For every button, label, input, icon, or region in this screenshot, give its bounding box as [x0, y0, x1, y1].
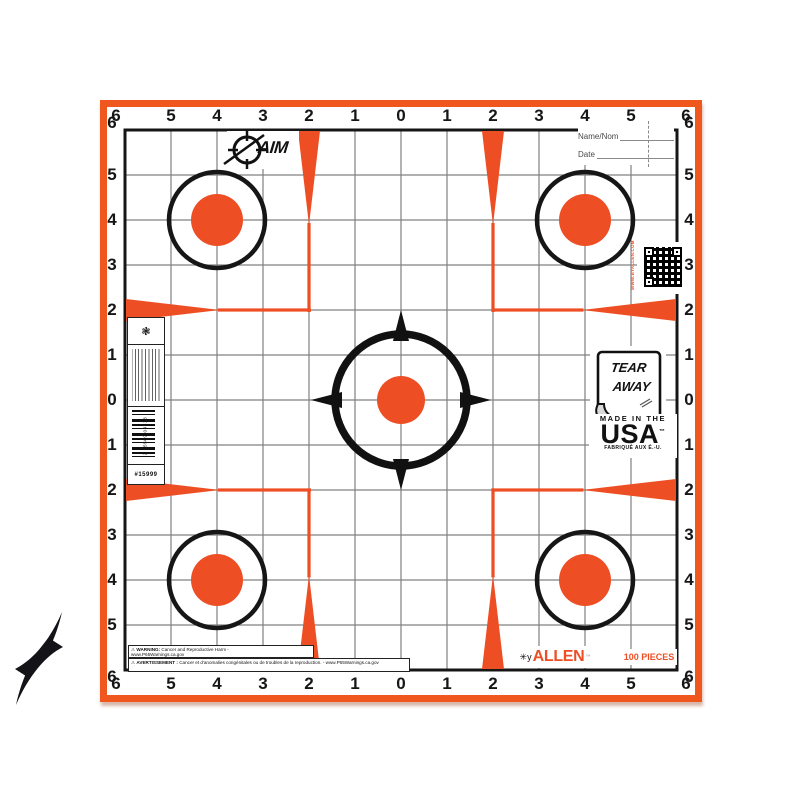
- qr-finder-icon: [644, 247, 654, 257]
- made-in-usa-badge: MADE IN THE USA™ FABRIQUÉ AUX É.-U.: [589, 414, 677, 458]
- allen-flower-icon: ❃: [128, 318, 164, 345]
- name-date-block: Name/Nom Date: [578, 123, 674, 165]
- tear-away-line2: AWAY: [612, 379, 651, 394]
- allen-logo-text: ALLEN: [533, 648, 585, 666]
- qr-finder-icon: [672, 247, 682, 257]
- allen-flower-icon: ✳y: [520, 653, 532, 662]
- qr-code: [637, 242, 685, 294]
- warning-en-box: ⚠ WARNING: Cancer and Reproductive Harm …: [128, 645, 314, 658]
- allen-logo: ✳y ALLEN ™: [516, 646, 594, 668]
- aim-logo-text: AIM: [257, 138, 289, 158]
- barcode-digits: 2 65509 04813: [142, 416, 147, 454]
- name-field-label: Name/Nom: [578, 132, 618, 141]
- fine-print-block: [128, 345, 164, 407]
- barcode-label: ❃ 2 65509 04813 #15999: [127, 317, 165, 485]
- warning-fr-box: ⚠ AVERTISSEMENT : Cancer et d'anomalies …: [128, 658, 410, 672]
- date-field-label: Date: [578, 150, 595, 159]
- product-photo: 6666555544443333222211110000111122223333…: [0, 0, 800, 800]
- fold-mark: [648, 121, 649, 167]
- retailer-n-watermark-logo: [15, 612, 63, 705]
- usa-text: USA™: [589, 423, 677, 445]
- barcode: 2 65509 04813: [128, 407, 164, 465]
- warning-icon: ⚠: [131, 660, 135, 665]
- orange-border-frame: [100, 100, 702, 702]
- piece-count-label: 100 PIECES: [621, 649, 677, 665]
- warning-icon: ⚠: [131, 647, 135, 652]
- date-field-line: [597, 149, 674, 159]
- tear-away-line1: TEAR: [610, 360, 647, 375]
- sku-number: #15999: [128, 465, 164, 484]
- qr-finder-icon: [644, 277, 654, 287]
